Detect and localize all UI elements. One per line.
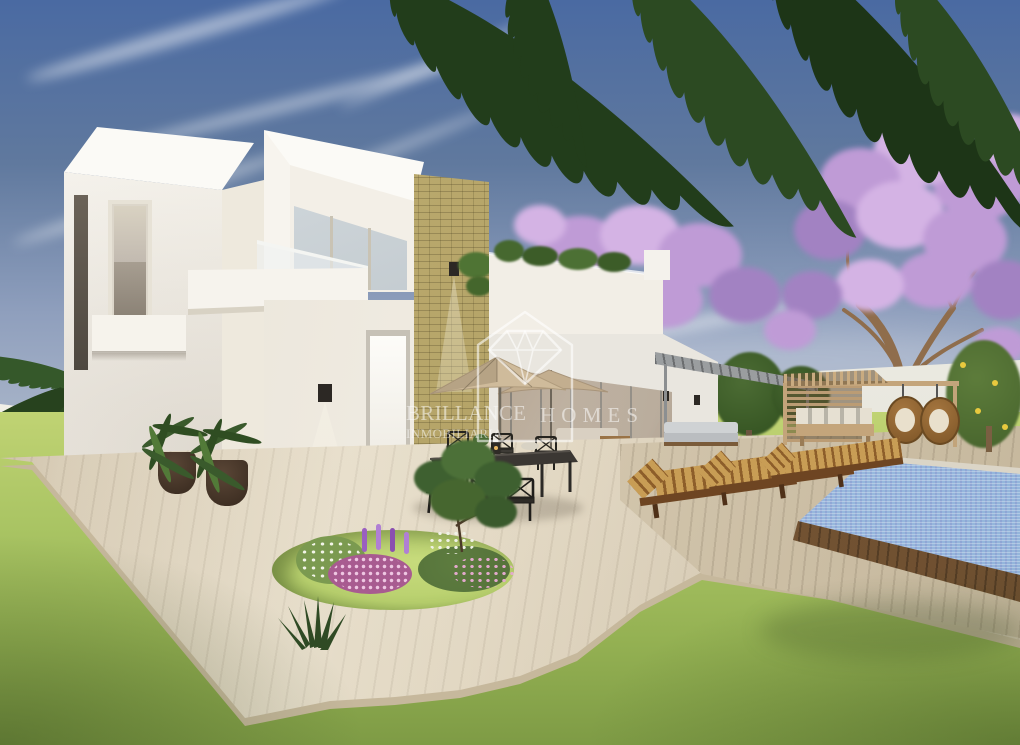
overhanging-palm-fronds bbox=[0, 0, 1020, 745]
villa-render-scene: BRILLANCE HOMES INMOBILIARIA bbox=[0, 0, 1020, 745]
